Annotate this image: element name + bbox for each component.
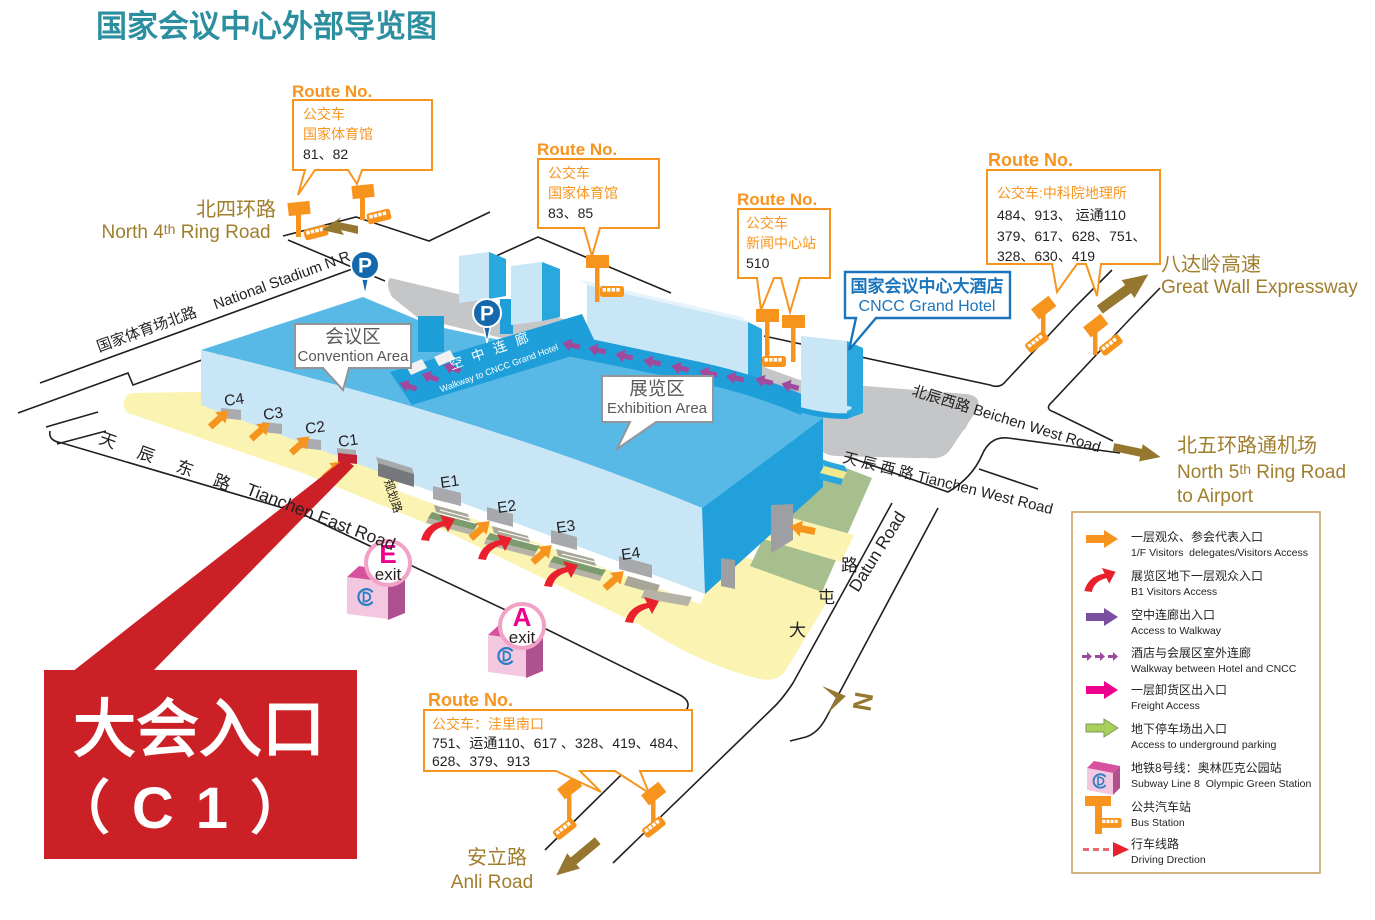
svg-text:exit: exit: [375, 565, 402, 584]
svg-text:83、85: 83、85: [548, 205, 593, 221]
svg-text:会议区: 会议区: [325, 326, 381, 347]
svg-text:328、630、419: 328、630、419: [997, 248, 1095, 264]
svg-text:安立路: 安立路: [467, 846, 527, 869]
svg-text:屯: 屯: [818, 588, 835, 607]
svg-text:Access to underground parking: Access to underground parking: [1131, 739, 1276, 751]
svg-text:一层卸货区出入口: 一层卸货区出入口: [1131, 682, 1227, 697]
svg-text:国家会议中心大酒店: 国家会议中心大酒店: [851, 276, 1004, 296]
svg-text:公共汽车站: 公共汽车站: [1131, 799, 1191, 814]
svg-text:CNCC Grand Hotel: CNCC Grand Hotel: [859, 298, 996, 315]
svg-text:Route No.: Route No.: [537, 140, 617, 159]
svg-text:E4: E4: [620, 544, 642, 564]
svg-text:North 4th Ring Road: North 4th Ring Road: [101, 221, 270, 243]
svg-text:81、82: 81、82: [303, 146, 348, 162]
svg-text:C4: C4: [223, 390, 245, 410]
svg-text:展览区: 展览区: [629, 378, 685, 399]
svg-text:Convention Area: Convention Area: [298, 348, 410, 365]
svg-text:新闻中心站: 新闻中心站: [746, 235, 816, 251]
svg-text:行车线路: 行车线路: [1131, 836, 1179, 851]
svg-text:Freight Access: Freight Access: [1131, 700, 1200, 712]
svg-text:E1: E1: [439, 472, 460, 491]
svg-text:公交车: 公交车: [548, 165, 590, 181]
svg-text:628、379、913: 628、379、913: [432, 753, 530, 769]
svg-text:公交车：洼里南口: 公交车：洼里南口: [432, 716, 544, 732]
svg-text:大会入口: 大会入口: [73, 695, 325, 765]
svg-text:Access to Walkway: Access to Walkway: [1131, 625, 1222, 637]
svg-text:地下停车场出入口: 地下停车场出入口: [1131, 721, 1227, 736]
svg-text:Driving Drection: Driving Drection: [1131, 854, 1206, 866]
svg-text:北四环路: 北四环路: [196, 198, 276, 221]
svg-text:Bus Station: Bus Station: [1131, 817, 1185, 829]
svg-text:E2: E2: [496, 497, 517, 516]
svg-text:751、运通110、617 、328、419、484、: 751、运通110、617 、328、419、484、: [432, 735, 687, 751]
svg-text:酒店与会展区室外连廊: 酒店与会展区室外连廊: [1131, 645, 1251, 660]
svg-text:空中连廊出入口: 空中连廊出入口: [1131, 607, 1215, 622]
svg-text:Subway Line 8 Olympic Green S: Subway Line 8 Olympic Green Station: [1131, 778, 1312, 790]
svg-text:公交车: 公交车: [746, 215, 788, 231]
svg-text:Great Wall Expressway: Great Wall Expressway: [1161, 277, 1358, 298]
svg-text:C3: C3: [262, 404, 284, 424]
svg-text:Route No.: Route No.: [737, 190, 817, 209]
svg-text:exit: exit: [509, 628, 536, 647]
svg-text:八达岭高速: 八达岭高速: [1161, 253, 1261, 276]
svg-text:一层观众、参会代表入口: 一层观众、参会代表入口: [1131, 529, 1263, 544]
svg-text:B1 Visitors Access: B1 Visitors Access: [1131, 586, 1217, 598]
svg-text:C2: C2: [304, 418, 326, 438]
svg-text:国家体育馆: 国家体育馆: [548, 185, 618, 201]
svg-text:Exhibition Area: Exhibition Area: [607, 400, 708, 417]
svg-text:Route No.: Route No.: [428, 690, 513, 710]
svg-text:国家会议中心外部导览图: 国家会议中心外部导览图: [96, 9, 437, 44]
svg-text:大: 大: [789, 621, 806, 640]
svg-text:E3: E3: [555, 517, 576, 536]
svg-text:公交车:中科院地理所: 公交车:中科院地理所: [997, 185, 1127, 201]
svg-text:地铁8号线：奥林匹克公园站: 地铁8号线：奥林匹克公园站: [1131, 761, 1282, 775]
svg-text:展览区地下一层观众入口: 展览区地下一层观众入口: [1131, 568, 1263, 583]
svg-text:（C1）: （C1）: [52, 776, 330, 841]
svg-text:379、617、628、751、: 379、617、628、751、: [997, 228, 1146, 244]
svg-text:Route No.: Route No.: [988, 150, 1073, 170]
svg-text:国家体育馆: 国家体育馆: [303, 126, 373, 142]
svg-text:to Airport: to Airport: [1177, 486, 1254, 507]
svg-text:Route No.: Route No.: [292, 82, 372, 101]
svg-text:North 5th Ring Road: North 5th Ring Road: [1177, 461, 1346, 483]
svg-text:北五环路通机场: 北五环路通机场: [1177, 434, 1317, 457]
svg-text:484、913、 运通110: 484、913、 运通110: [997, 207, 1126, 223]
svg-text:1/F Visitors delegates/Visito: 1/F Visitors delegates/Visitors Access: [1131, 547, 1308, 559]
svg-text:C1: C1: [337, 431, 359, 451]
svg-text:公交车: 公交车: [303, 106, 345, 122]
svg-text:510: 510: [746, 255, 770, 271]
svg-text:Anli Road: Anli Road: [451, 872, 533, 893]
svg-text:Walkway between Hotel and CNCC: Walkway between Hotel and CNCC: [1131, 663, 1297, 675]
